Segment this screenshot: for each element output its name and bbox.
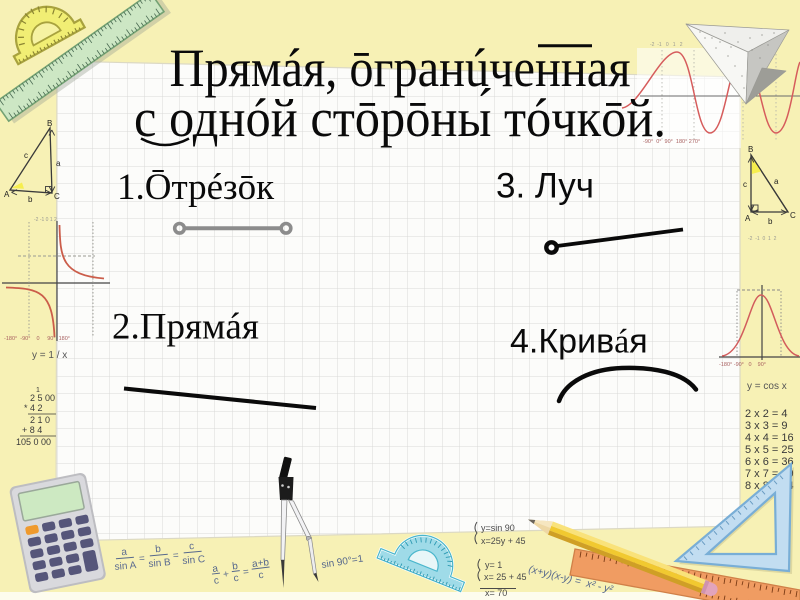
svg-text:C: C: [54, 192, 60, 201]
svg-text:a: a: [56, 159, 61, 168]
svg-text:sin A: sin A: [114, 560, 137, 573]
svg-text:-180° -90° 0 90° 180°: -180° -90° 0 90° 180°: [4, 336, 70, 342]
svg-text:x= 25 + 45: x= 25 + 45: [484, 572, 527, 582]
svg-text:sin C: sin C: [182, 554, 206, 567]
svg-text:y = 1 / x: y = 1 / x: [32, 350, 67, 361]
svg-text:4.Кривáя: 4.Кривáя: [510, 323, 648, 361]
svg-text:a: a: [774, 177, 779, 186]
svg-text:y= 1: y= 1: [485, 560, 502, 570]
svg-text:C: C: [790, 211, 796, 220]
svg-text:b: b: [768, 217, 773, 226]
svg-text:4 x 4 = 16: 4 x 4 = 16: [745, 432, 794, 444]
svg-text:3 x 3 = 9: 3 x 3 = 9: [745, 420, 788, 432]
svg-text:y=sin 90: y=sin 90: [481, 523, 515, 533]
svg-text:с однóй стōрōны́ тóчкōй.: с однóй стōрōны́ тóчкōй.: [134, 87, 666, 148]
svg-text:6 x 6 = 36: 6 x 6 = 36: [745, 456, 794, 468]
svg-text:c: c: [189, 541, 195, 552]
svg-text:105 0 00: 105 0 00: [16, 437, 51, 447]
svg-text:-180° -90° 0 90°: -180° -90° 0 90°: [719, 362, 766, 368]
svg-text:3. Луч: 3. Луч: [496, 167, 594, 206]
svg-text:c: c: [24, 151, 28, 160]
svg-text:2 1 0: 2 1 0: [30, 415, 50, 425]
svg-text:b: b: [28, 195, 33, 204]
svg-text:B: B: [47, 119, 52, 128]
svg-text:2 x 2 = 4: 2 x 2 = 4: [745, 408, 788, 420]
svg-text:B: B: [748, 145, 753, 154]
svg-text:c: c: [743, 180, 747, 189]
svg-text:=: =: [172, 550, 179, 561]
svg-text:A: A: [4, 190, 10, 199]
svg-text:* 4 2: * 4 2: [24, 403, 43, 413]
svg-text:-2 -1 0 1 2: -2 -1 0 1 2: [748, 236, 777, 242]
svg-text:-2 -1 0 1 2: -2 -1 0 1 2: [34, 217, 57, 223]
svg-text:1.Ōтрéзōк: 1.Ōтрéзōк: [117, 167, 275, 208]
svg-text:x= 70: x= 70: [485, 588, 507, 598]
svg-text:A: A: [745, 214, 751, 223]
svg-text:2 5 00: 2 5 00: [30, 393, 55, 403]
svg-text:-2 -1 0 1 2: -2 -1 0 1 2: [650, 42, 683, 48]
svg-text:=: =: [139, 553, 146, 564]
svg-text:+ 8 4: + 8 4: [22, 425, 42, 435]
svg-text:y = cos x: y = cos x: [747, 381, 787, 392]
svg-text:2.Прямáя: 2.Прямáя: [112, 307, 259, 348]
svg-text:5 x 5 = 25: 5 x 5 = 25: [745, 444, 794, 456]
svg-text:x=25y + 45: x=25y + 45: [481, 536, 526, 546]
svg-text:sin B: sin B: [148, 557, 171, 570]
